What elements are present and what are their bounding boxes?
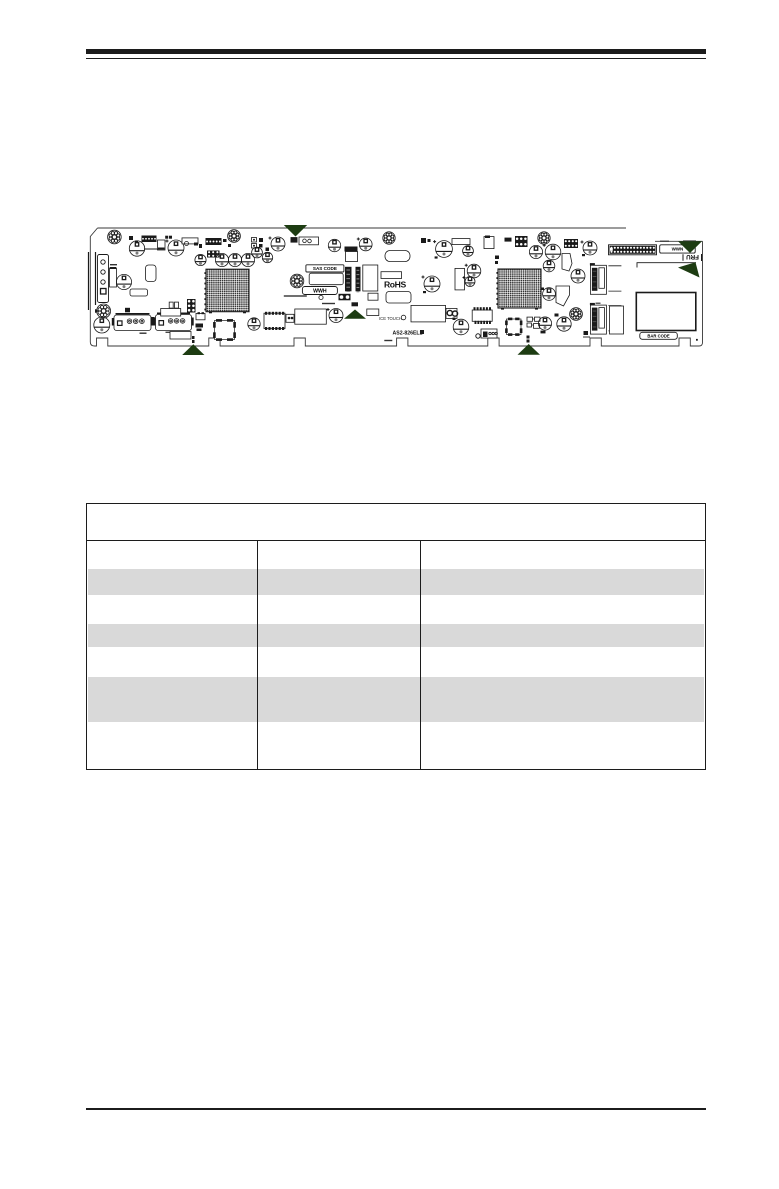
svg-text:WWH: WWH [313, 288, 327, 294]
svg-text:SAS CODE: SAS CODE [313, 266, 337, 271]
svg-text:RoHS: RoHS [384, 280, 406, 290]
svg-text:FRU: FRU [686, 253, 699, 260]
svg-text:BAR CODE: BAR CODE [647, 333, 670, 338]
svg-text:ICE TOUCH: ICE TOUCH [379, 316, 402, 321]
svg-text:AS2-826EL2: AS2-826EL2 [393, 331, 423, 337]
svg-text:WWN: WWN [672, 247, 684, 252]
